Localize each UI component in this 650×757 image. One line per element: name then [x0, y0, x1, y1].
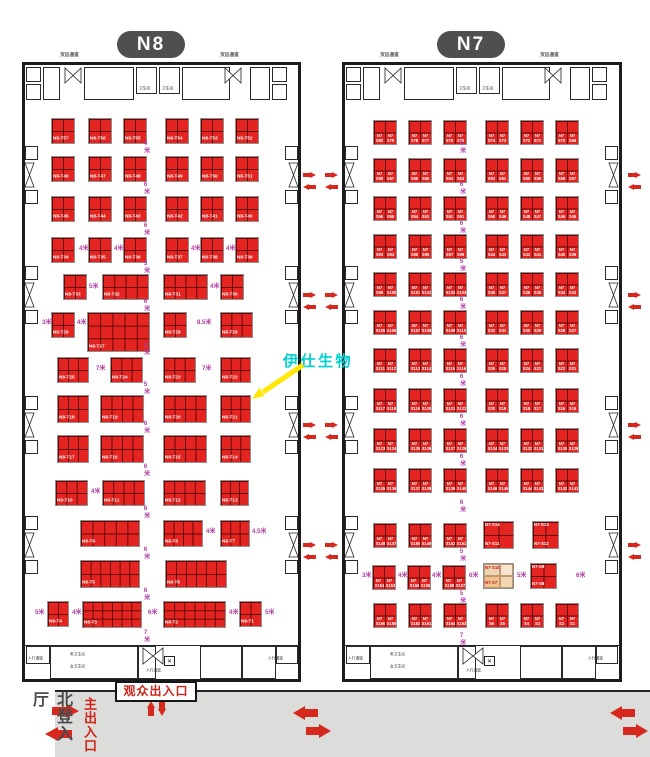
booth: N7 S48N7 S47	[520, 196, 544, 221]
booth-label: N7 S79	[387, 134, 394, 143]
booth-label: N7 S23	[534, 362, 541, 371]
booth-label: N8-T57	[53, 137, 69, 142]
direction-arrow	[303, 422, 316, 428]
booth: N7 S24N7 S23	[520, 348, 544, 373]
room	[345, 310, 358, 324]
booth-label: N7 S163	[457, 617, 464, 626]
elevator-icon: ✕	[164, 656, 175, 666]
booth-label: N7 S45	[569, 210, 576, 219]
booth-label: N7 S117	[376, 402, 383, 411]
booth-label: N8-T30	[222, 293, 238, 298]
room	[370, 646, 458, 679]
booth-label: N7 S162	[411, 617, 418, 626]
direction-arrow	[306, 724, 331, 738]
aisle-width-label: 6米	[142, 299, 149, 311]
direction-arrow	[325, 304, 338, 310]
booth: N7 S93N7 S94	[373, 234, 397, 259]
booth-label: N7 S136	[387, 482, 394, 491]
booth-label: N7 S150	[411, 537, 418, 546]
booth: N7 S52N7 S51	[443, 196, 467, 221]
aisle-width-label: 6米	[148, 610, 157, 617]
booth-label: N7 S73	[499, 134, 506, 143]
booth: N7 S80N7 S79	[373, 120, 397, 145]
booth-label: N7 S49	[499, 210, 506, 219]
structure-label: 人行通道	[466, 669, 481, 673]
booth: N7 S134N7 S133	[485, 428, 509, 453]
aisle-width-label: 6米	[458, 335, 465, 347]
aisle-width-label: 6米	[458, 297, 465, 309]
booth: N7 S42N7 S41	[520, 234, 544, 259]
booth-label: N7 S80	[376, 134, 383, 143]
room	[605, 190, 618, 204]
booth-label: N8-T4	[49, 620, 62, 625]
booth: N7 S115N7 S116	[443, 348, 467, 373]
booth-label: N7 S65	[422, 172, 429, 181]
booth: N8-T9	[80, 520, 140, 547]
booth: N8-T44	[88, 196, 112, 222]
booth: N8-T46	[51, 156, 75, 182]
aisle-width-label: 3米	[42, 320, 51, 327]
door-icon	[288, 162, 299, 188]
room	[25, 266, 38, 280]
room	[345, 190, 358, 204]
booth-label: N7 S135	[376, 482, 383, 491]
booth: N7 S109N7 S110	[443, 310, 467, 335]
freight-channel-label: 货运通道	[220, 53, 239, 58]
booth-label: N8-T52	[237, 137, 253, 142]
aisle-width-label: 4米	[398, 573, 407, 580]
door-icon	[288, 412, 299, 438]
booth: N7 S32N7 S31	[485, 310, 509, 335]
direction-arrow	[303, 554, 316, 560]
booth-label: N7 S121	[446, 402, 453, 411]
booth-label: N7-S12	[534, 542, 549, 547]
door-icon	[608, 412, 619, 438]
booth-label: N8-T46	[53, 175, 69, 180]
booth: N7 S105N7 S106	[373, 310, 397, 335]
room	[285, 440, 298, 454]
direction-arrow	[325, 554, 338, 560]
booth-label: N7 S141	[569, 482, 576, 491]
booth-label: N8-T48	[125, 175, 141, 180]
booth-label: N7 S61	[499, 172, 506, 181]
booth: N8-T3	[82, 601, 142, 628]
booth: N7 S160N7 S159	[373, 603, 397, 628]
booth-label: N7 S40	[558, 248, 565, 257]
booth: N7 S4N7 S3	[520, 603, 544, 628]
booth-label: N7 S100	[387, 286, 394, 295]
booth: N7 S44N7 S43	[485, 234, 509, 259]
booth-label: N8-T14	[222, 456, 238, 461]
booth: N7 S66N7 S65	[408, 158, 432, 183]
booth-label: N8-T17	[59, 456, 75, 461]
direction-arrow	[325, 184, 338, 190]
booth-label: N7 S32	[488, 324, 495, 333]
booth: N8-T45	[51, 196, 75, 222]
booth-label: N7 S138	[422, 482, 429, 491]
booth-label: N7 S77	[422, 134, 429, 143]
room	[26, 646, 50, 664]
booth-label: N7 S148	[376, 537, 383, 546]
booth: N7 S156N7 S155	[407, 565, 431, 590]
door-icon	[224, 67, 242, 84]
room	[345, 560, 358, 574]
structure-label: 卫生间	[139, 87, 150, 91]
booth-label: N7 S98	[457, 248, 464, 257]
room	[345, 266, 358, 280]
booth: N7 S154N7 S153	[372, 565, 396, 590]
booth-label: N7 S108	[422, 324, 429, 333]
booth: N7 S162N7 S161	[408, 603, 432, 628]
direction-arrow	[303, 542, 316, 548]
booth-label: N7 S105	[376, 324, 383, 333]
room	[272, 67, 287, 82]
booth: N7 S20N7 S19	[485, 388, 509, 413]
booth-label: N7 S18	[523, 402, 530, 411]
booth-label: N8-T15	[165, 456, 181, 461]
aisle-width-label: 4米	[432, 573, 441, 580]
booth-label: N7 S21	[569, 362, 576, 371]
door-icon	[384, 67, 402, 84]
direction-arrow	[325, 292, 338, 298]
visitor-entrance-label: 观众出入口	[115, 681, 197, 702]
booth: N7 S111N7 S112	[373, 348, 397, 373]
booth: N7 S101N7 S102	[408, 272, 432, 297]
callout-arrow-icon	[233, 356, 363, 411]
booth: N8-T10	[55, 480, 88, 506]
booth: N8-T8	[163, 520, 203, 547]
room	[26, 67, 41, 82]
room	[605, 146, 618, 160]
aisle-width-label: 7米	[96, 366, 105, 373]
aisle-width-label: 3米	[362, 573, 371, 580]
room	[25, 146, 38, 160]
booth-label: N7 S161	[422, 617, 429, 626]
room	[520, 646, 562, 679]
booth-label: N8-T31	[165, 293, 181, 298]
booth-label: N7 S3	[534, 617, 541, 626]
booth: N7 S123N7 S124	[373, 428, 397, 453]
room	[200, 646, 242, 679]
door-icon	[24, 412, 35, 438]
direction-arrow	[293, 706, 318, 720]
structure-label: 女卫生间	[390, 665, 405, 669]
booth: N8-T50	[200, 156, 224, 182]
booth-label: N7 S48	[523, 210, 530, 219]
booth-label: N7 S71	[534, 134, 541, 143]
booth-label: N8-T29	[222, 331, 238, 336]
booth-label: N7 S70	[558, 134, 565, 143]
booth: N7 S130N7 S129	[555, 428, 579, 453]
booth-label: N7 S72	[523, 134, 530, 143]
direction-arrow	[303, 172, 316, 178]
booth: N7 S135N7 S136	[373, 468, 397, 493]
booth: N8-T29	[220, 312, 253, 338]
booth-label: N7 S2	[558, 617, 565, 626]
booth: N8-T53	[200, 118, 224, 144]
aisle-width-label: 6米	[142, 588, 149, 600]
booth: N7 S38N7 S37	[485, 272, 509, 297]
booth: N7 S78N7 S77	[408, 120, 432, 145]
booth: N8-T43	[123, 196, 147, 222]
aisle-width-label: 5米	[458, 259, 465, 271]
aisle-width-label: 4米	[191, 246, 200, 253]
booth-label: N8-T56	[90, 137, 106, 142]
booth: N8-T54	[165, 118, 189, 144]
booth: N7 S30N7 S29	[520, 310, 544, 335]
room	[182, 67, 230, 100]
booth-label: N7 S51	[457, 210, 464, 219]
booth: N7 S28N7 S27	[555, 310, 579, 335]
door-icon	[344, 412, 355, 438]
booth: N7 S103N7 S104	[443, 272, 467, 297]
door-icon	[462, 647, 484, 665]
booth-label: N8-T24	[112, 376, 128, 381]
booth-label: N7 S152	[446, 537, 453, 546]
booth-label: N8-T7	[222, 540, 235, 545]
booth: N8-T31	[163, 274, 208, 300]
aisle-width-label: 6米	[142, 421, 149, 433]
structure-label: 人行通道	[348, 657, 363, 661]
booth: N7 S46N7 S45	[555, 196, 579, 221]
booth-label: N8-T45	[53, 215, 69, 220]
booth-label: N7 S74	[488, 134, 495, 143]
booth: N7 S121N7 S122	[443, 388, 467, 413]
booth-label: N8-T20	[165, 416, 181, 421]
door-icon	[24, 282, 35, 308]
booth: N8-T33	[63, 274, 87, 300]
booth-label: N7 S131	[534, 442, 541, 451]
booth-label: N7 S104	[457, 286, 464, 295]
aisle-width-label: 6米	[142, 182, 149, 194]
booth: N7 S58N7 S57	[555, 158, 579, 183]
booth: N8-T24	[110, 357, 143, 383]
direction-arrow	[147, 701, 155, 716]
room	[25, 190, 38, 204]
booth-label: N7 S69	[569, 134, 576, 143]
booth-label: N7 S30	[523, 324, 530, 333]
booth-label: N7 S101	[411, 286, 418, 295]
direction-arrow	[628, 304, 641, 310]
booth-label: N7 S78	[411, 134, 418, 143]
booth-label: N7 S120	[422, 402, 429, 411]
room	[25, 560, 38, 574]
booth: N7 S68N7 S67	[373, 158, 397, 183]
room	[605, 440, 618, 454]
booth: N8-T11	[102, 480, 145, 506]
structure-label: 男卫生间	[390, 653, 405, 657]
booth-label: N7 S26	[488, 362, 495, 371]
booth: N7-S13N7-S12	[532, 521, 559, 549]
booth-label: N8-T40	[237, 215, 253, 220]
booth-label: N8-T25	[59, 376, 75, 381]
aisle-width-label: 6米	[458, 182, 465, 194]
booth: N7 S74N7 S73	[485, 120, 509, 145]
booth: N8-T39	[235, 237, 259, 263]
booth-label: N7 S94	[387, 248, 394, 257]
booth-label: N7 S156	[410, 579, 417, 588]
room	[502, 67, 550, 100]
booth-label: N8-T38	[202, 256, 218, 261]
north-hall-label: 北登入厅	[26, 691, 74, 757]
aisle-width-label: 6米	[458, 454, 465, 466]
booth-label: N7 S39	[569, 248, 576, 257]
booth: N8-T13	[220, 480, 249, 506]
booth: N8-T37	[165, 237, 189, 263]
direction-arrow	[303, 434, 316, 440]
booth: N8-T6	[165, 560, 227, 588]
direction-arrow	[628, 554, 641, 560]
booth: N7 S117N7 S118	[373, 388, 397, 413]
room	[250, 67, 270, 100]
room	[363, 67, 380, 100]
booth-label: N7 S144	[523, 482, 530, 491]
booth-label: N7 S52	[446, 210, 453, 219]
booth-label: N7 S37	[499, 286, 506, 295]
booth-label: N7 S6	[488, 617, 495, 626]
room	[592, 84, 607, 100]
aisle-width-label: 4米	[142, 141, 149, 153]
room	[345, 146, 358, 160]
booth-label: N7-S13	[534, 523, 549, 528]
aisle-width-label: 4米	[226, 246, 235, 253]
booth: N7 S139N7 S140	[443, 468, 467, 493]
room	[25, 396, 38, 410]
booth: N8-T2	[163, 601, 226, 628]
direction-arrow	[303, 292, 316, 298]
booth-label: N7 S16	[558, 402, 565, 411]
booth-label: N7 S126	[422, 442, 429, 451]
door-icon	[344, 282, 355, 308]
booth: N8-T56	[88, 118, 112, 144]
booth-label: N8-T44	[90, 215, 106, 220]
booth: N7-S9N7-S8	[530, 563, 557, 589]
aisle-width-label: 6米	[458, 414, 465, 426]
door-icon	[64, 67, 82, 84]
booth-label: N7 S130	[558, 442, 565, 451]
aisle-width-label: 5米	[89, 284, 98, 291]
booth-label: N8-T47	[90, 175, 106, 180]
booth-label: N8-T21	[222, 416, 238, 421]
booth-label: N7 S47	[534, 210, 541, 219]
booth-label: N8-T42	[167, 215, 183, 220]
room	[570, 67, 590, 100]
booth-label: N7 S149	[422, 537, 429, 546]
booth: N8-T30	[220, 274, 244, 300]
booth: N8-T7	[220, 520, 250, 547]
booth: N7 S107N7 S108	[408, 310, 432, 335]
booth: N7 S152N7 S151	[443, 523, 467, 548]
booth-label: N7 S106	[387, 324, 394, 333]
booth-label: N7 S5	[499, 617, 506, 626]
direction-arrow	[628, 292, 641, 298]
room	[605, 396, 618, 410]
direction-arrow	[158, 701, 166, 716]
aisle-width-label: 5米	[517, 573, 526, 580]
aisle-width-label: 6米	[458, 374, 465, 386]
aisle-width-label: 4米	[114, 246, 123, 253]
booth-label: N8-T23	[165, 376, 181, 381]
booth: N7 S142N7 S141	[555, 468, 579, 493]
booth-label: N7 S97	[446, 248, 453, 257]
booth-label: N7 S142	[558, 482, 565, 491]
booth: N7 S18N7 S17	[520, 388, 544, 413]
booth-label: N8-T10	[57, 499, 73, 504]
room	[404, 67, 454, 100]
booth-label: N7 S123	[376, 442, 383, 451]
room	[276, 646, 298, 664]
booth: N7-S10N7-S7	[483, 563, 514, 589]
booth-label: N7 S63	[457, 172, 464, 181]
booth-label: N7 S110	[457, 324, 464, 333]
booth-label: N7 S143	[534, 482, 541, 491]
room	[346, 646, 370, 664]
booth: N7 S2N7 S1	[555, 603, 579, 628]
structure-label: 女卫生间	[70, 665, 85, 669]
aisle-width-label: 4米	[458, 141, 465, 153]
booth: N7 S144N7 S143	[520, 468, 544, 493]
booth-label: N7 S55	[387, 210, 394, 219]
booth: N8-T20	[163, 395, 207, 423]
booth-label: N7 S28	[558, 324, 565, 333]
booth-label: N8-T2	[165, 621, 178, 626]
booth-label: N7 S112	[387, 362, 394, 371]
booth-label: N8-T12	[165, 499, 181, 504]
room	[25, 440, 38, 454]
aisle-width-label: 6米	[142, 506, 149, 518]
booth-label: N7 S56	[376, 210, 383, 219]
booth-label: N7 S35	[534, 286, 541, 295]
booth-label: N7 S31	[499, 324, 506, 333]
booth-label: N7 S129	[569, 442, 576, 451]
booth: N8-T26	[51, 312, 75, 338]
room	[285, 560, 298, 574]
booth-label: N8-T13	[222, 499, 238, 504]
booth-label: N8-T6	[167, 581, 180, 586]
freight-channel-label: 货运通道	[540, 53, 559, 58]
booth-label: N7 S62	[488, 172, 495, 181]
booth: N7 S113N7 S114	[408, 348, 432, 373]
booth-label: N7 S34	[558, 286, 565, 295]
door-icon	[24, 532, 35, 558]
booth-label: N7 S38	[488, 286, 495, 295]
booth-label: N7 S17	[534, 402, 541, 411]
aisle-width-label: 4米	[206, 529, 215, 536]
room	[285, 266, 298, 280]
booth-label: N8-T36	[125, 256, 141, 261]
booth-label: N8-T49	[167, 175, 183, 180]
room	[562, 646, 596, 679]
booth: N7 S95N7 S96	[408, 234, 432, 259]
aisle-width-label: 7米	[458, 633, 465, 645]
booth-label: N7-S11	[485, 542, 499, 547]
booth: N7 S40N7 S39	[555, 234, 579, 259]
booth-label: N7 S160	[376, 617, 383, 626]
direction-arrow	[628, 184, 641, 190]
booth-label: N7 S116	[457, 362, 464, 371]
booth-label: N7 S114	[422, 362, 429, 371]
booth-label: N7 S29	[534, 324, 541, 333]
booth: N8-T57	[51, 118, 75, 144]
hall-badge-n8: N8	[117, 31, 185, 58]
freight-channel-label: 货运通道	[60, 53, 79, 58]
booth: N8-T52	[235, 118, 259, 144]
door-icon	[288, 532, 299, 558]
booth: N7 S62N7 S61	[485, 158, 509, 183]
aisle-width-label: 5米	[35, 610, 44, 617]
booth: N7 S36N7 S35	[520, 272, 544, 297]
booth-label: N8-T35	[90, 256, 106, 261]
